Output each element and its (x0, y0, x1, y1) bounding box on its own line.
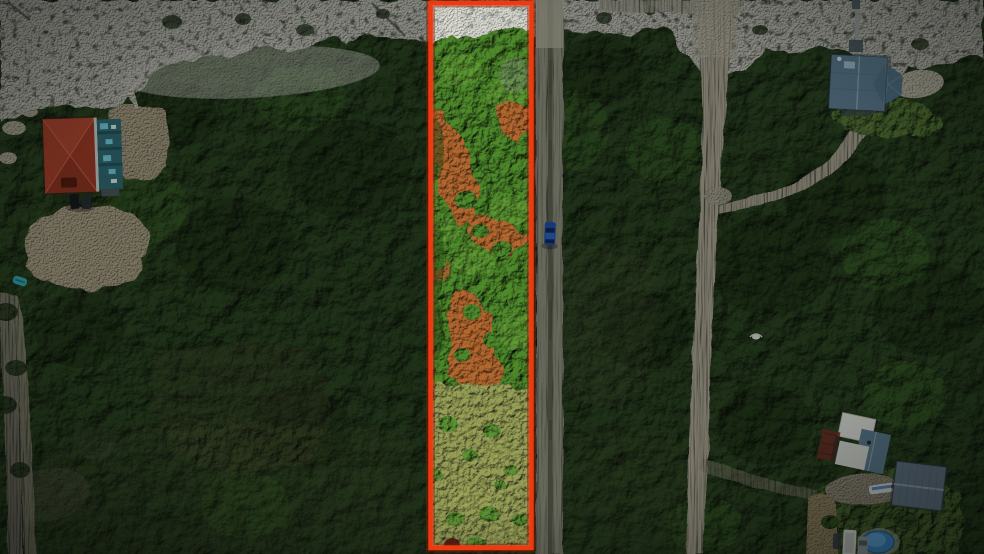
aerial-photo (0, 0, 984, 554)
photo-grain (0, 0, 984, 554)
